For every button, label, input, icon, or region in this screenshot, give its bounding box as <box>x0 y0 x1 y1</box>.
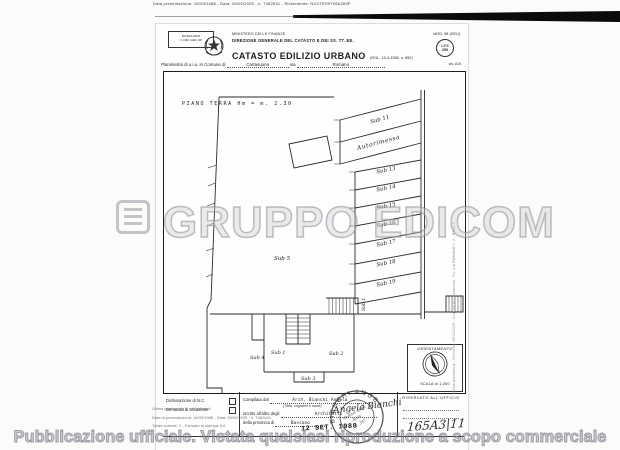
scan-artifact-band <box>293 11 620 22</box>
declaration-nc-label: Dichiarazione di N.C. <box>166 398 205 403</box>
watermark-footer: Pubblicazione ufficiale. Vietata qualsia… <box>14 428 607 447</box>
doc-title: CATASTO EDILIZIO URBANO <box>232 51 366 61</box>
compiled-label: Compilata dal <box>243 397 269 402</box>
scanned-cadastral-document: Data presentazione: 16/09/1988 - Data: 2… <box>0 0 620 450</box>
overlay-line2: Data di presentazione: 16/09/1988 - Data… <box>152 415 271 420</box>
edicom-logo-icon <box>116 200 150 234</box>
reserved-dotted-line <box>403 404 459 411</box>
room-label-sub4: Sub 4 <box>250 355 265 361</box>
watermark-brand: GRUPPO EDICOM <box>163 198 555 248</box>
doc-title-ref: (ROL. 13-4-1938, n. 652) <box>370 56 412 60</box>
ministry-line: MINISTERO DELLE FINANZE <box>232 32 285 36</box>
stair-side-label: Sub 1 <box>361 298 367 311</box>
floor-label: PIANO TERRA Hm = m. 2.30 <box>182 101 293 107</box>
room-label-sub1: Sub 1 <box>271 350 286 356</box>
stall-label: Sub 19 <box>376 279 397 289</box>
room-label-sub2: Sub 2 <box>329 351 344 357</box>
civ-label: civ. A.B. <box>449 62 462 66</box>
overlay-line1: Ultima planimetria in atti catastali <box>152 406 210 411</box>
planimetria-via-label: via <box>290 62 296 67</box>
checkbox-nc <box>229 398 236 405</box>
checkbox-var <box>229 407 236 414</box>
planimetria-prefix: Planimetria di u.i.u. in Comune di <box>161 62 225 67</box>
declaration-nc-row: Dichiarazione di N.C. <box>166 398 236 405</box>
compass-icon <box>422 351 448 377</box>
lire-stamp-icon: LIRE 250 <box>436 39 454 57</box>
planimetria-line: Planimetria di u.i.u. in Comune di Carta… <box>161 62 441 68</box>
scan-artifact-line <box>155 16 295 17</box>
room-label-sub5: Sub 5 <box>274 256 291 262</box>
mod-right-label: MOD. 98 (DEU) <box>433 32 460 36</box>
room-label-sub3: Sub 3 <box>301 376 316 382</box>
stall-label: Sub 11 <box>370 115 390 126</box>
planimetria-comune: Cartasuona <box>227 62 289 68</box>
italy-emblem-icon <box>202 34 226 60</box>
side-caption-line1: Ultima planimetria - Richiesta: 26/02/20… <box>452 271 456 394</box>
compiled-caption: (Titolo, cognome e nome) <box>283 404 322 408</box>
province-label: della provincia di <box>243 420 274 425</box>
scan-header-microtext: Data presentazione: 16/09/1988 - Data: 2… <box>153 1 351 6</box>
planimetria-via-value: Romano <box>297 62 385 68</box>
direction-line: DIREZIONE GENERALE DEL CATASTO E DEI SS.… <box>232 38 354 43</box>
reserved-office-label: RISERVATO ALL'UFFICIO <box>399 396 463 400</box>
lire-value: 250 <box>437 48 453 52</box>
stall-label: Sub 18 <box>376 259 397 269</box>
